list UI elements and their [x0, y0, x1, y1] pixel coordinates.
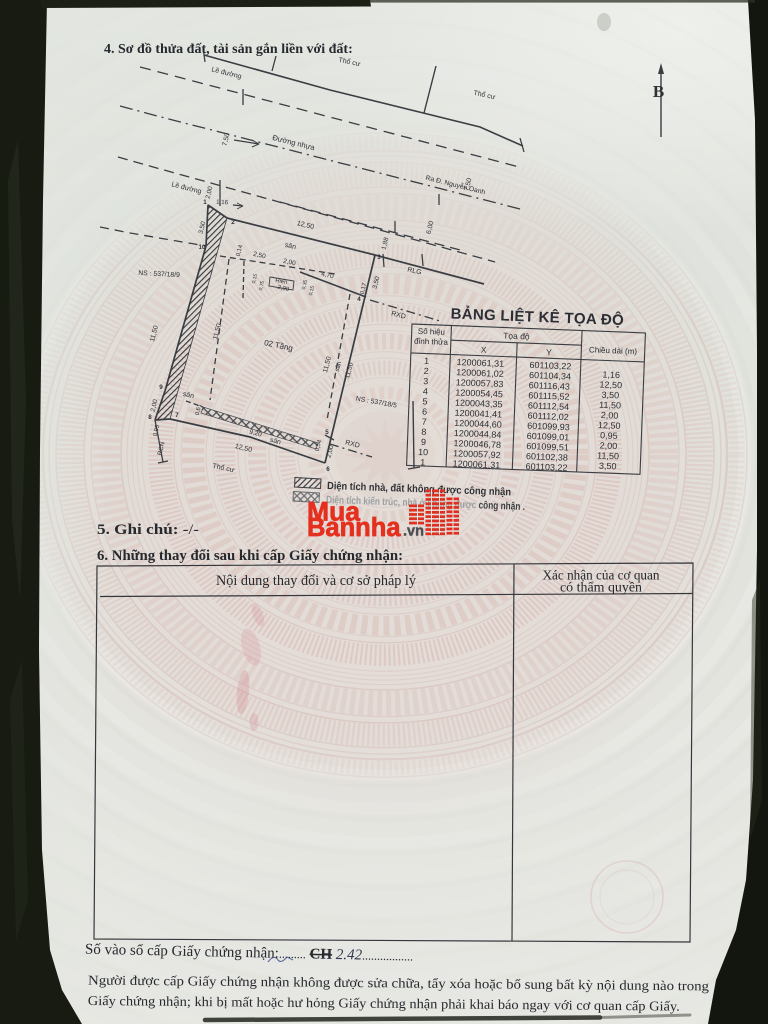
svg-text:3: 3: [423, 376, 428, 386]
svg-text:5: 5: [325, 429, 329, 436]
svg-text:Số hiệu: Số hiệu: [418, 327, 445, 337]
svg-text:1: 1: [203, 199, 207, 206]
svg-text:601103,22: 601103,22: [525, 461, 567, 473]
svg-text:7: 7: [422, 417, 427, 427]
svg-text:0,95: 0,95: [600, 430, 618, 441]
svg-text:2,00: 2,00: [600, 440, 618, 451]
svg-text:5. Ghi chú: -/-: 5. Ghi chú: -/-: [97, 522, 199, 538]
svg-text:8: 8: [148, 414, 152, 421]
svg-text:1,16: 1,16: [216, 199, 229, 207]
svg-text:3,50: 3,50: [599, 461, 617, 472]
svg-text:2,00: 2,00: [601, 410, 619, 421]
svg-text:8: 8: [421, 427, 426, 437]
svg-text:9: 9: [421, 437, 426, 447]
svg-text:7: 7: [175, 412, 179, 419]
svg-text:Bannha: Bannha: [307, 514, 401, 542]
svg-text:Y: Y: [546, 347, 552, 357]
svg-text:11,50: 11,50: [597, 451, 619, 462]
svg-text:10: 10: [418, 447, 428, 457]
svg-text:có thẩm quyền: có thẩm quyền: [560, 580, 642, 595]
svg-text:X: X: [481, 345, 487, 355]
svg-text:Tọa độ: Tọa độ: [503, 331, 530, 342]
svg-text:2: 2: [424, 366, 429, 376]
svg-text:11,50: 11,50: [599, 400, 621, 411]
svg-text:1200061,31: 1200061,31: [452, 458, 500, 470]
svg-text:4: 4: [357, 296, 361, 303]
svg-text:2: 2: [231, 219, 235, 226]
svg-text:.vn: .vn: [403, 524, 424, 540]
svg-text:Chiều dài (m): Chiều dài (m): [589, 345, 638, 356]
svg-text:9: 9: [159, 384, 163, 391]
svg-text:1: 1: [424, 356, 429, 366]
svg-text:1,16: 1,16: [602, 369, 620, 380]
svg-text:6. Những thay đổi sau khi cấp: 6. Những thay đổi sau khi cấp Giấy chứng…: [97, 548, 403, 564]
svg-text:6: 6: [422, 407, 427, 417]
svg-text:B: B: [653, 82, 664, 101]
svg-text:12,50: 12,50: [598, 420, 621, 431]
svg-text:4. Sơ đồ thửa đất, tài sản gắn: 4. Sơ đồ thửa đất, tài sản gắn liền với …: [104, 42, 353, 57]
svg-text:5: 5: [422, 396, 427, 406]
svg-text:3,50: 3,50: [601, 390, 619, 401]
svg-text:10: 10: [199, 244, 206, 251]
svg-text:đỉnh thửa: đỉnh thửa: [414, 337, 449, 347]
svg-text:12,50: 12,50: [599, 379, 622, 390]
svg-text:6: 6: [326, 466, 330, 473]
svg-text:4: 4: [423, 386, 428, 396]
svg-text:3: 3: [377, 254, 381, 261]
svg-text:1: 1: [420, 457, 425, 467]
svg-text:Nội dung thay đổi và cơ sở phá: Nội dung thay đổi và cơ sở pháp lý: [216, 573, 416, 589]
